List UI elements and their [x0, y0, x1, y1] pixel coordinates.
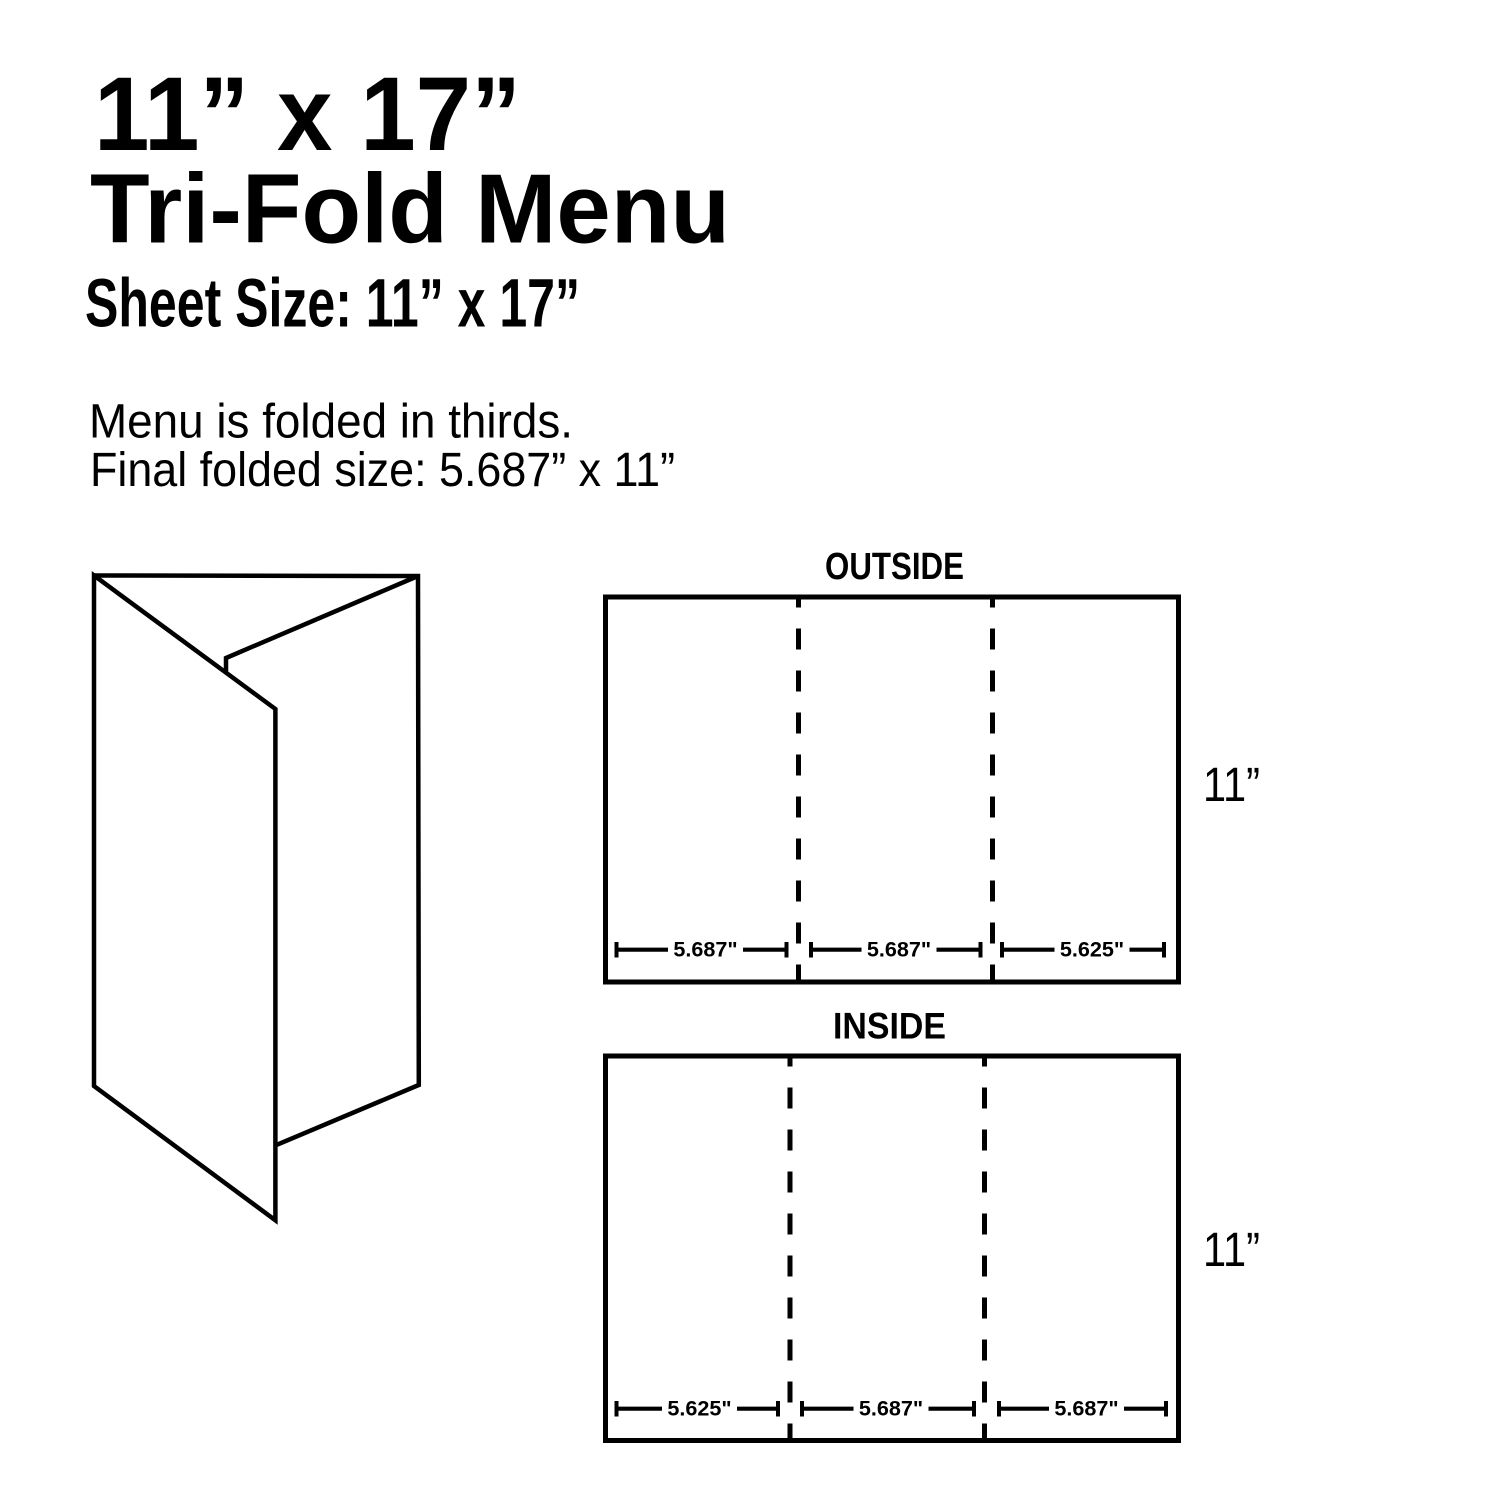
svg-text:Sheet Size: 11” x 17”: Sheet Size: 11” x 17”	[85, 264, 580, 341]
svg-text:Tri-Fold Menu: Tri-Fold Menu	[90, 154, 730, 264]
svg-text:OUTSIDE: OUTSIDE	[825, 546, 964, 588]
svg-text:11”: 11”	[1203, 759, 1260, 812]
svg-text:5.687": 5.687"	[673, 937, 737, 962]
svg-text:INSIDE: INSIDE	[833, 1005, 946, 1047]
svg-text:11”: 11”	[1203, 1224, 1260, 1277]
svg-text:Final folded size: 5.687” x 11: Final folded size: 5.687” x 11”	[90, 444, 675, 497]
svg-text:Menu is folded in thirds.: Menu is folded in thirds.	[89, 396, 573, 449]
svg-text:5.625": 5.625"	[667, 1396, 731, 1421]
svg-text:5.625": 5.625"	[1060, 937, 1124, 962]
svg-text:5.687": 5.687"	[1054, 1396, 1118, 1421]
svg-text:5.687": 5.687"	[867, 937, 931, 962]
svg-text:5.687": 5.687"	[859, 1396, 923, 1421]
